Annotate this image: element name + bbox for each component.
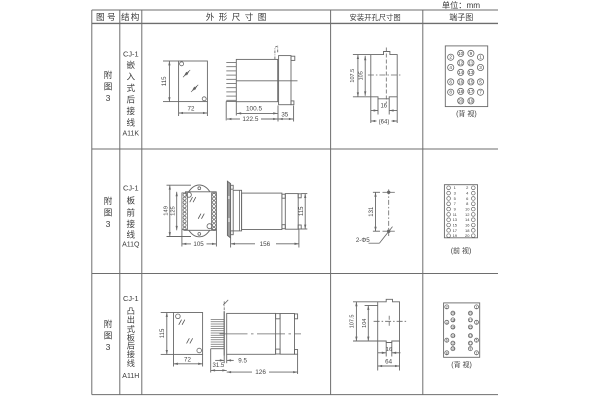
svg-text:接: 接 bbox=[127, 349, 135, 359]
svg-text:图: 图 bbox=[104, 82, 113, 92]
svg-text:后: 后 bbox=[127, 340, 135, 350]
svg-text:19: 19 bbox=[453, 233, 458, 238]
svg-text:131: 131 bbox=[369, 206, 375, 217]
svg-text:16: 16 bbox=[451, 326, 455, 330]
svg-text:附: 附 bbox=[104, 318, 113, 329]
svg-text:安装开孔尺寸图: 安装开孔尺寸图 bbox=[350, 13, 401, 22]
svg-text:104: 104 bbox=[362, 319, 368, 328]
svg-text:9: 9 bbox=[470, 51, 473, 56]
svg-text:19: 19 bbox=[468, 98, 474, 103]
svg-text:107.5: 107.5 bbox=[350, 69, 356, 83]
svg-text:107.5: 107.5 bbox=[350, 315, 356, 329]
svg-text:(前 视): (前 视) bbox=[451, 246, 472, 255]
svg-text:20: 20 bbox=[451, 312, 455, 316]
svg-text:16: 16 bbox=[465, 222, 470, 227]
svg-text:14: 14 bbox=[458, 70, 464, 75]
svg-text:3: 3 bbox=[106, 342, 111, 352]
svg-text:(背 视): (背 视) bbox=[456, 109, 477, 118]
svg-text:3: 3 bbox=[479, 65, 482, 70]
svg-text:接: 接 bbox=[126, 105, 135, 116]
svg-text:6: 6 bbox=[449, 79, 452, 84]
svg-text:105: 105 bbox=[193, 241, 204, 248]
svg-text:9.5: 9.5 bbox=[238, 358, 247, 365]
svg-text:图: 图 bbox=[104, 331, 113, 341]
svg-text:5: 5 bbox=[479, 79, 482, 84]
svg-text:接: 接 bbox=[126, 218, 135, 229]
svg-text:17: 17 bbox=[468, 89, 474, 94]
svg-text:6: 6 bbox=[446, 339, 448, 343]
svg-text:18: 18 bbox=[451, 318, 455, 322]
svg-text:端子图: 端子图 bbox=[449, 12, 473, 22]
svg-text:A11Q: A11Q bbox=[122, 241, 140, 248]
svg-text:15: 15 bbox=[468, 79, 474, 84]
svg-text:12: 12 bbox=[451, 342, 455, 346]
svg-text:单位：mm: 单位：mm bbox=[442, 0, 480, 10]
svg-text:式: 式 bbox=[127, 324, 135, 334]
svg-text:(背 视): (背 视) bbox=[451, 360, 472, 369]
svg-text:出: 出 bbox=[127, 315, 135, 325]
svg-text:122.5: 122.5 bbox=[242, 116, 258, 123]
svg-text:18: 18 bbox=[465, 228, 470, 233]
svg-text:64: 64 bbox=[385, 359, 392, 366]
svg-text:17: 17 bbox=[453, 228, 458, 233]
svg-text:9: 9 bbox=[470, 347, 472, 351]
svg-text:8: 8 bbox=[446, 351, 448, 355]
svg-text:15: 15 bbox=[469, 326, 473, 330]
svg-text:附: 附 bbox=[104, 69, 113, 80]
svg-text:2: 2 bbox=[446, 305, 448, 309]
svg-text:1: 1 bbox=[479, 55, 482, 60]
svg-text:115: 115 bbox=[161, 76, 168, 86]
svg-text:72: 72 bbox=[184, 356, 191, 363]
svg-text:线: 线 bbox=[126, 116, 135, 127]
svg-text:结构: 结构 bbox=[121, 11, 141, 22]
svg-text:(64): (64) bbox=[379, 119, 390, 125]
svg-text:14: 14 bbox=[451, 334, 455, 338]
svg-text:125: 125 bbox=[170, 206, 176, 216]
svg-text:CJ-1: CJ-1 bbox=[123, 294, 139, 303]
svg-text:16: 16 bbox=[458, 79, 464, 84]
svg-text:入: 入 bbox=[126, 72, 135, 82]
svg-text:嵌: 嵌 bbox=[126, 60, 135, 70]
svg-text:2: 2 bbox=[449, 55, 452, 60]
svg-text:16: 16 bbox=[380, 104, 387, 110]
svg-text:149: 149 bbox=[163, 206, 169, 216]
svg-text:8: 8 bbox=[449, 90, 452, 95]
svg-text:2-Φ5: 2-Φ5 bbox=[356, 237, 370, 244]
svg-text:11: 11 bbox=[469, 342, 473, 346]
svg-text:100.5: 100.5 bbox=[246, 106, 262, 113]
svg-text:3: 3 bbox=[476, 321, 478, 325]
svg-text:72: 72 bbox=[188, 106, 195, 113]
svg-text:后: 后 bbox=[126, 95, 135, 105]
svg-text:附: 附 bbox=[104, 195, 113, 206]
svg-text:105: 105 bbox=[358, 71, 364, 80]
svg-text:A11K: A11K bbox=[122, 130, 139, 137]
svg-text:20: 20 bbox=[465, 233, 470, 238]
svg-text:线: 线 bbox=[126, 228, 135, 239]
svg-text:12: 12 bbox=[465, 212, 470, 217]
svg-text:板: 板 bbox=[126, 195, 135, 206]
svg-text:13: 13 bbox=[468, 70, 474, 75]
svg-text:3: 3 bbox=[106, 219, 111, 229]
svg-text:13: 13 bbox=[469, 334, 473, 338]
svg-text:115: 115 bbox=[299, 206, 305, 216]
svg-text:11: 11 bbox=[469, 60, 474, 65]
svg-text:7: 7 bbox=[476, 351, 478, 355]
svg-text:156: 156 bbox=[260, 241, 271, 248]
svg-text:A11H: A11H bbox=[122, 373, 139, 380]
svg-text:16: 16 bbox=[386, 347, 392, 353]
svg-text:31.5: 31.5 bbox=[213, 363, 225, 369]
svg-text:10: 10 bbox=[465, 206, 470, 211]
svg-text:5: 5 bbox=[476, 339, 478, 343]
svg-text:17: 17 bbox=[469, 318, 473, 322]
svg-text:图: 图 bbox=[104, 208, 113, 218]
svg-text:1: 1 bbox=[476, 305, 478, 309]
svg-text:7: 7 bbox=[479, 90, 482, 95]
svg-text:4: 4 bbox=[449, 65, 452, 70]
svg-text:10: 10 bbox=[458, 51, 464, 56]
svg-text:13: 13 bbox=[453, 217, 458, 222]
svg-text:12: 12 bbox=[458, 60, 464, 65]
svg-text:线: 线 bbox=[127, 358, 135, 368]
svg-text:4: 4 bbox=[446, 321, 448, 325]
svg-text:19: 19 bbox=[469, 312, 473, 316]
svg-text:115: 115 bbox=[160, 328, 166, 338]
svg-text:外形尺寸图: 外形尺寸图 bbox=[206, 11, 271, 22]
svg-text:10: 10 bbox=[451, 347, 455, 351]
svg-text:CJ-1: CJ-1 bbox=[123, 50, 139, 59]
svg-text:凸: 凸 bbox=[127, 307, 135, 316]
svg-text:CJ-1: CJ-1 bbox=[123, 184, 139, 193]
svg-text:15: 15 bbox=[453, 222, 458, 227]
svg-text:前: 前 bbox=[126, 207, 135, 218]
svg-text:126: 126 bbox=[255, 369, 266, 376]
svg-text:式: 式 bbox=[126, 82, 135, 93]
svg-text:图 号: 图 号 bbox=[96, 12, 116, 22]
svg-text:3: 3 bbox=[106, 93, 111, 103]
svg-text:20: 20 bbox=[458, 98, 464, 103]
svg-text:14: 14 bbox=[465, 217, 470, 222]
svg-text:18: 18 bbox=[458, 89, 464, 94]
svg-text:35: 35 bbox=[281, 111, 288, 118]
